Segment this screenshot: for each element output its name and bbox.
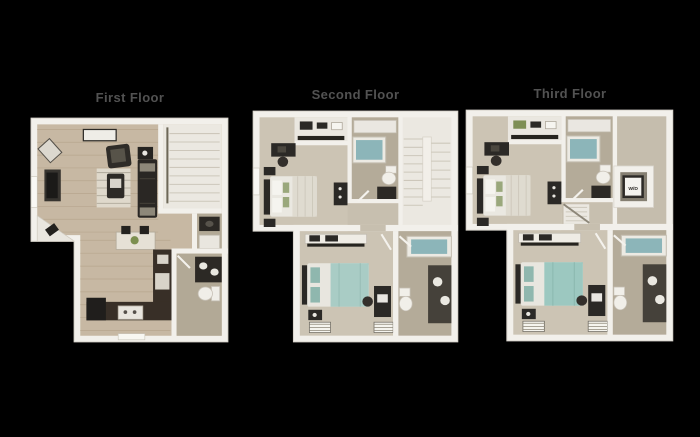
desk1-laptop: [277, 146, 285, 152]
desk1-chair: [277, 157, 288, 167]
bath3-sink-b: [655, 295, 665, 304]
closet1-item-2: [530, 121, 541, 127]
bath-wall-top: [171, 248, 227, 253]
bath2-wall-bottom-a: [561, 198, 572, 202]
bed1-pillow-b: [485, 197, 495, 211]
bath2-toilet-bowl: [381, 172, 395, 184]
bed1-pillow-a: [272, 180, 282, 194]
bath2-counter: [353, 120, 395, 132]
bed1-accent-a: [282, 183, 288, 193]
bath-sink-1: [199, 262, 207, 269]
bath3-tub-water: [411, 239, 447, 253]
powder-wall: [192, 214, 197, 253]
closet2-rod: [307, 244, 364, 247]
hall-gap: [574, 224, 600, 230]
bath3-vanity: [428, 265, 451, 323]
closet2-item-1: [309, 235, 320, 241]
bath2-counter: [568, 119, 611, 131]
desk1-chair: [491, 156, 502, 166]
closet2-item-2: [539, 234, 552, 240]
bedroom1-window: [466, 167, 472, 194]
bedroom1-window: [253, 168, 259, 195]
bath3-sink-a: [648, 276, 658, 285]
ceiling-vent: [83, 129, 116, 140]
bath2-vanity: [591, 186, 610, 198]
bath3-sink-a: [432, 277, 442, 286]
closet1-tray: [331, 122, 342, 129]
bath2-tub-water: [570, 139, 597, 159]
bath2-wall-left: [561, 116, 565, 202]
fridge: [86, 298, 105, 321]
bath2-wall-bottom-b: [583, 198, 613, 202]
closet2-item-1: [523, 234, 534, 240]
second-floor-section: Second Floor: [248, 87, 463, 346]
third-floor-title: Third Floor: [534, 86, 607, 102]
bed2-headboard: [515, 264, 520, 303]
bath2-tub-water: [356, 140, 383, 160]
stairs-wall: [398, 117, 402, 225]
bed1-duvet: [292, 176, 316, 216]
powder-sink: [205, 221, 213, 227]
bed1-duvet: [506, 175, 531, 215]
desk2-laptop: [377, 294, 388, 302]
island-plant: [130, 236, 138, 244]
desk2-chair: [576, 295, 587, 305]
stove: [118, 306, 143, 319]
nightstand2-lamp: [526, 312, 530, 316]
under-stairs-wall: [158, 208, 222, 213]
bath3-toilet-tank: [614, 287, 625, 295]
bath-wall-left: [171, 248, 176, 338]
dresser1-knob-a: [338, 187, 341, 190]
wd-label: W/D: [628, 186, 638, 192]
ottoman-tray: [110, 179, 121, 188]
nightstand1-a: [263, 167, 275, 175]
dresser1: [548, 182, 562, 205]
bath2-vanity: [377, 187, 396, 199]
stool-2: [139, 226, 148, 234]
bath3-toilet-bowl: [399, 296, 412, 310]
bed1-accent-b: [282, 197, 288, 207]
stove-burner-1: [123, 310, 127, 314]
first-floor-title: First Floor: [96, 90, 165, 106]
closet1-wall: [294, 141, 347, 145]
dresser1-knob-b: [338, 195, 341, 198]
bed1-pillow-a: [485, 179, 495, 193]
bed1-headboard: [263, 179, 269, 214]
bath2-wall-left: [347, 117, 351, 203]
bed1-headboard: [477, 178, 483, 213]
dresser1-knob-a: [552, 186, 555, 189]
desk2-laptop: [591, 293, 602, 301]
bath-sink-2: [210, 269, 218, 276]
nightstand1-b: [263, 219, 275, 227]
bath-vanity: [195, 257, 222, 283]
bath2-wall-bottom-a: [347, 199, 358, 203]
closet1-item-1: [299, 121, 312, 129]
closet1-item-1: [513, 120, 526, 128]
living-window: [31, 177, 37, 208]
floor-plans-canvas: First Floor Second Floor Third Floor W/D: [0, 0, 700, 437]
bed1-pillow-b: [272, 198, 282, 212]
bath3-vanity: [643, 264, 667, 322]
closet1-shelf-bar: [511, 135, 558, 139]
stove-burner-2: [132, 310, 136, 314]
bed1-accent-b: [496, 196, 502, 206]
first-floor-section: First Floor: [26, 90, 234, 347]
kitchen-window: [118, 334, 145, 340]
second-floor-plan: [250, 108, 462, 346]
bath3-sink-b: [440, 296, 450, 305]
sofa-pillow-2: [139, 207, 154, 215]
bed2-pillow-b: [524, 286, 534, 302]
side-table-pillow: [142, 151, 147, 156]
nightstand1-b: [477, 218, 489, 226]
nightstand2-lamp: [312, 313, 316, 317]
bath3-toilet-tank: [399, 288, 410, 296]
desk2-chair: [362, 296, 373, 306]
toilet-bowl: [198, 287, 212, 300]
bath2-toilet-bowl: [596, 171, 610, 183]
third-floor-plan: W/D: [463, 107, 677, 345]
second-floor-title: Second Floor: [312, 87, 400, 103]
bath3-wall: [393, 231, 398, 336]
dishwasher: [155, 273, 169, 289]
counter-sink: [157, 255, 168, 264]
closet1-wall: [508, 140, 562, 144]
bath2-wall-bottom-b: [368, 199, 398, 203]
bath3-toilet-bowl: [614, 295, 627, 309]
bed2-headboard: [301, 265, 306, 304]
bath3-tub-water: [626, 238, 662, 252]
closet2-item-2: [325, 235, 338, 241]
bed1-accent-a: [496, 182, 502, 192]
closet1-item-2: [316, 122, 327, 128]
desk1-laptop: [491, 145, 500, 151]
closet1-shelf-bar: [297, 136, 344, 140]
powder-shelf: [199, 235, 220, 248]
armchair-cushion: [110, 148, 126, 163]
first-floor-plan: [28, 111, 233, 347]
stool-1: [121, 226, 130, 234]
bed2-pillow-b: [310, 287, 320, 303]
third-floor-section: Third Floor W/D: [462, 86, 678, 345]
bath3-wall: [607, 230, 612, 335]
closet2-rod: [521, 243, 579, 246]
bed2-pillow-a: [310, 267, 320, 283]
stairs-divider: [422, 137, 430, 201]
nightstand1-a: [477, 166, 489, 174]
sofa-pillow-1: [139, 163, 154, 171]
closet1-tray: [545, 121, 556, 128]
dresser1: [333, 183, 347, 206]
stairs-wall: [158, 124, 163, 210]
bed2-pillow-a: [524, 266, 534, 282]
hall-gap: [360, 225, 385, 231]
dresser1-knob-b: [552, 194, 555, 197]
tv-screen: [46, 173, 57, 199]
